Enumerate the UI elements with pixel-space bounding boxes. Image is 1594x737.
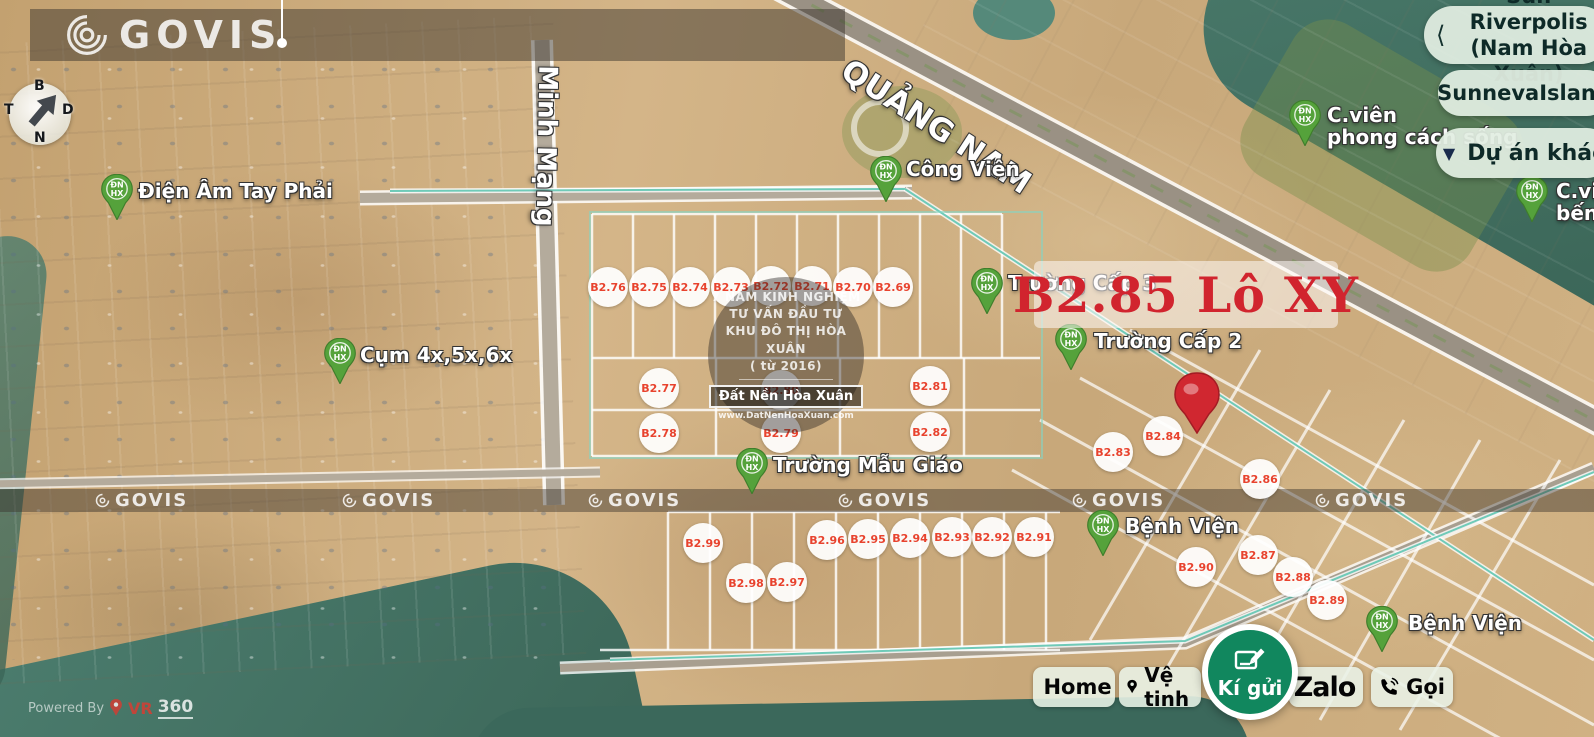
zalo-button[interactable]: Zalo [1289,667,1363,707]
home-button-label: Home [1043,675,1111,699]
govis-swirl-icon [588,493,603,508]
govis-strip-text: GOVIS [362,490,435,511]
svg-text:HX: HX [111,189,124,198]
plot-marker-b2-86[interactable]: B2.86 [1240,459,1280,499]
watermark-divider [739,379,833,380]
plot-marker-b2-97[interactable]: B2.97 [767,562,807,602]
compass-north-label: B [34,78,45,94]
poi-label-line: Điện Âm Tay Phải [138,180,333,202]
govis-strip-watermark: GOVIS [588,489,681,512]
poi-label-line: Trường Mẫu Giáo [773,454,963,476]
vr360-pin-icon [109,699,123,717]
govis-swirl-icon [1072,493,1087,508]
svg-text:HX: HX [1526,191,1539,200]
govis-strip-watermark: GOVIS [95,489,188,512]
poi-label-line: Cụm 4x,5x,6x [360,344,512,366]
poi-label-cong-vien: Công Viên [906,158,1020,180]
chevron-left-icon: ⟨ [1436,21,1445,49]
map-dot-marker [277,38,287,48]
poi-label-cvien-ben-do: C.viênbến đò [1556,180,1594,224]
compass[interactable]: B T D N [4,66,80,152]
chevron-down-icon: ▼ [1443,144,1455,163]
watermark-website: www.DatNenHoaXuan.com [718,411,854,421]
govis-watermark-strip: GOVISGOVISGOVISGOVISGOVISGOVIS [0,489,1594,512]
project-nav-label: SunnevaIsland [1437,81,1594,105]
call-button[interactable]: Gọi [1371,667,1453,707]
govis-strip-watermark: GOVIS [838,489,931,512]
svg-text:HX: HX [1299,115,1312,124]
plot-marker-b2-92[interactable]: B2.92 [972,517,1012,557]
govis-swirl-icon [342,493,357,508]
dnhx-green-pin-icon: ĐNHX [869,156,903,202]
govis-swirl-icon [66,14,108,56]
consign-button-label: Kí gửi [1218,676,1283,700]
poi-pin-truong-cap-3[interactable]: ĐNHX [970,268,1004,318]
dnhx-green-pin-icon: ĐNHX [970,268,1004,314]
poi-label-benh-vien-1: Bệnh Viện [1125,515,1239,537]
svg-text:HX: HX [746,463,759,472]
compass-east-label: D [62,102,74,118]
note-pencil-icon [1233,645,1267,675]
svg-text:HX: HX [1097,525,1110,534]
svg-text:HX: HX [1065,339,1078,348]
plot-marker-b2-75[interactable]: B2.75 [629,267,669,307]
poi-pin-cong-vien[interactable]: ĐNHX [869,156,903,206]
govis-strip-text: GOVIS [1335,490,1408,511]
poi-pin-truong-cap-2[interactable]: ĐNHX [1054,324,1088,374]
dnhx-green-pin-icon: ĐNHX [1365,606,1399,652]
zalo-logo: Zalo [1294,672,1356,703]
plot-marker-b2-88[interactable]: B2.88 [1273,557,1313,597]
poi-label-line: Bệnh Viện [1125,515,1239,537]
govis-swirl-icon [1315,493,1330,508]
poi-label-truong-mau-giao: Trường Mẫu Giáo [773,454,963,476]
home-button[interactable]: Home [1033,667,1115,707]
poi-label-line: Bệnh Viện [1408,612,1522,634]
satellite-button-label: Vệ tinh [1144,663,1193,711]
plot-marker-b2-93[interactable]: B2.93 [932,517,972,557]
call-button-label: Gọi [1406,675,1445,699]
highlight-banner: B2.85 Lô XY [1034,261,1338,328]
vr360-logo-360: 360 [158,698,194,719]
plot-marker-b2-81[interactable]: B2.81 [910,366,950,406]
poi-pin-cvien-ben-do[interactable]: ĐNHX [1515,176,1549,226]
consign-button[interactable]: Kí gửi [1202,624,1298,720]
poi-pin-cum-4x5x6x[interactable]: ĐNHX [323,338,357,388]
plot-marker-b2-87[interactable]: B2.87 [1238,535,1278,575]
compass-south-label: N [34,130,46,146]
plot-marker-b2-78[interactable]: B2.78 [639,413,679,453]
plot-marker-b2-94[interactable]: B2.94 [890,518,930,558]
dnhx-green-pin-icon: ĐNHX [1086,510,1120,556]
plot-marker-b2-98[interactable]: B2.98 [726,563,766,603]
powered-by-text: Powered By [28,701,104,716]
dnhx-green-pin-icon: ĐNHX [100,174,134,220]
map-pin-icon [1127,674,1137,700]
dnhx-green-pin-icon: ĐNHX [1054,324,1088,370]
poi-pin-cvien-phong-cach-song[interactable]: ĐNHX [1288,100,1322,150]
govis-strip-text: GOVIS [115,490,188,511]
svg-text:HX: HX [334,353,347,362]
govis-strip-text: GOVIS [1092,490,1165,511]
street-label-minh-mang: Minh Mạng [530,65,563,227]
dnhx-green-pin-icon: ĐNHX [323,338,357,384]
project-nav-label: Dự án khác [1467,141,1594,166]
plot-marker-b2-76[interactable]: B2.76 [588,267,628,307]
plot-marker-b2-96[interactable]: B2.96 [807,520,847,560]
govis-strip-watermark: GOVIS [342,489,435,512]
poi-pin-truong-mau-giao[interactable]: ĐNHX [735,448,769,498]
govis-strip-watermark: GOVIS [1315,489,1408,512]
vr360-logo-vr: VR [128,699,153,718]
dnhx-green-pin-icon: ĐNHX [1515,176,1549,222]
govis-logo: GOVIS [66,13,282,57]
svg-text:HX: HX [1376,621,1389,630]
watermark-line: KHU ĐÔ THỊ HÒA XUÂN [708,323,864,358]
project-nav-sun-riverpolis[interactable]: ⟨ Sun Riverpolis (Nam Hòa Xuân) [1424,6,1594,64]
satellite-view-button[interactable]: Vệ tinh [1119,667,1201,707]
svg-text:HX: HX [880,171,893,180]
poi-label-line: C.viên [1556,180,1594,202]
govis-watermark-band: GOVIS [30,9,845,61]
watermark-line: ( từ 2016) [750,358,822,375]
govis-swirl-icon [95,493,110,508]
plot-marker-b2-77[interactable]: B2.77 [639,368,679,408]
plot-marker-b2-82[interactable]: B2.82 [910,412,950,452]
center-watermark: 7 NĂM KINH NGHIỆM TƯ VẤN ĐẦU TƯ KHU ĐÔ T… [708,277,864,433]
plot-marker-b2-91[interactable]: B2.91 [1014,517,1054,557]
project-nav-other-projects[interactable]: ▼ Dự án khác [1436,128,1594,178]
watermark-line: 7 NĂM KINH NGHIỆM [711,289,860,306]
poi-label-truong-cap-2: Trường Cấp 2 [1094,330,1242,352]
plot-marker-b2-90[interactable]: B2.90 [1176,547,1216,587]
project-nav-line1: Sun Riverpolis [1470,0,1588,34]
govis-strip-watermark: GOVIS [1072,489,1165,512]
satellite-map-viewport[interactable]: GOVIS B T D N ⟨ Sun Riverpolis (Nam Hòa … [0,0,1594,737]
poi-label-dien-am-tay-phai: Điện Âm Tay Phải [138,180,333,202]
svg-text:HX: HX [981,283,994,292]
govis-swirl-icon [838,493,853,508]
govis-strip-text: GOVIS [858,490,931,511]
poi-pin-dien-am-tay-phai[interactable]: ĐNHX [100,174,134,224]
govis-strip-text: GOVIS [608,490,681,511]
plot-marker-b2-83[interactable]: B2.83 [1093,432,1133,472]
project-nav-sunneva-island[interactable]: SunnevaIsland [1438,70,1594,116]
phone-icon [1379,675,1399,699]
poi-label-benh-vien-2: Bệnh Viện [1408,612,1522,634]
plot-marker-b2-69[interactable]: B2.69 [873,267,913,307]
map-line-marker [281,0,283,40]
powered-by-credit[interactable]: Powered By VR 360 [28,698,193,719]
plot-marker-b2-89[interactable]: B2.89 [1307,580,1347,620]
dnhx-green-pin-icon: ĐNHX [1288,100,1322,146]
selected-plot-pin-icon[interactable] [1173,372,1221,434]
dat-nen-hoa-xuan-logo: Đất Nền Hòa Xuân [709,385,863,408]
poi-label-line: Trường Cấp 2 [1094,330,1242,352]
poi-label-line: Công Viên [906,158,1020,180]
plot-marker-b2-74[interactable]: B2.74 [670,267,710,307]
dnhx-green-pin-icon: ĐNHX [735,448,769,494]
plot-marker-b2-95[interactable]: B2.95 [848,519,888,559]
poi-pin-benh-vien-2[interactable]: ĐNHX [1365,606,1399,656]
poi-pin-benh-vien-1[interactable]: ĐNHX [1086,510,1120,560]
poi-label-line: bến đò [1556,202,1594,224]
govis-logo-text: GOVIS [119,13,282,57]
poi-label-cum-4x5x6x: Cụm 4x,5x,6x [360,344,512,366]
watermark-line: TƯ VẤN ĐẦU TƯ [729,306,842,323]
compass-west-label: T [4,102,14,118]
plot-marker-b2-99[interactable]: B2.99 [683,523,723,563]
